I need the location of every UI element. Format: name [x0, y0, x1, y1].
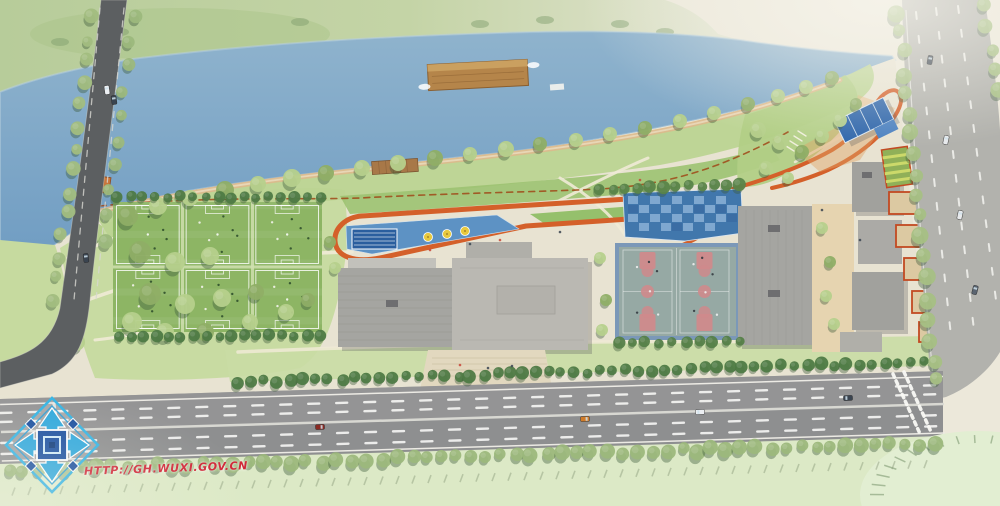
tree-highlight: [685, 181, 689, 185]
bank-shrub: [611, 20, 629, 28]
lane-dash: [970, 294, 971, 301]
tree-highlight: [350, 373, 355, 378]
tree-highlight: [227, 194, 232, 199]
free-throw-circle: [642, 306, 654, 318]
tree-highlight: [596, 366, 600, 370]
player-dot: [221, 315, 223, 317]
tree-highlight: [54, 254, 60, 260]
tree-highlight: [495, 369, 500, 374]
tree-highlight: [215, 291, 223, 299]
tree-highlight: [921, 357, 925, 361]
lane-dash: [970, 101, 971, 108]
lane-dash: [99, 8, 100, 14]
tree-highlight: [264, 330, 270, 336]
tree-highlight: [868, 361, 873, 366]
player-dot: [657, 313, 659, 315]
tree-highlight: [362, 374, 367, 379]
tree-highlight: [252, 178, 259, 185]
lane-dash: [117, 73, 118, 79]
tree-highlight: [361, 455, 368, 462]
tree-highlight: [723, 337, 727, 341]
checker-tile: [650, 214, 660, 222]
lane-dash: [915, 422, 916, 425]
lane-dash: [907, 379, 908, 382]
tree-highlight: [124, 60, 130, 66]
player-dot: [289, 282, 291, 284]
tree-highlight: [203, 249, 211, 257]
tree-highlight: [734, 442, 741, 449]
tree-highlight: [132, 244, 142, 254]
tree-highlight: [557, 446, 564, 453]
player-dot: [222, 215, 224, 217]
building-s-small: [840, 332, 882, 352]
tree-highlight: [774, 136, 781, 143]
lane-dash: [947, 103, 948, 110]
tree-highlight: [241, 193, 245, 197]
tree-highlight: [152, 331, 158, 337]
lane-dash: [80, 228, 81, 234]
tree-highlight: [131, 11, 137, 17]
tree-highlight: [323, 375, 328, 380]
person-dot: [821, 209, 824, 212]
player-dot: [701, 257, 703, 259]
roof-structure: [497, 286, 555, 314]
tree-highlight: [128, 333, 133, 338]
blue-plaza: [623, 189, 743, 241]
tree-highlight: [392, 157, 399, 164]
lane-dash: [93, 86, 94, 92]
tree-highlight: [726, 362, 732, 368]
player-dot: [716, 314, 718, 316]
tree-highlight: [992, 84, 999, 91]
player-dot: [693, 310, 695, 312]
tree-highlight: [244, 316, 251, 323]
tree-highlight: [930, 438, 937, 445]
lane-dash: [995, 292, 996, 299]
car-icon: [843, 395, 852, 400]
lane-dash: [964, 246, 965, 253]
tree-highlight: [905, 109, 912, 116]
bank-shrub: [536, 16, 554, 24]
free-throw-circle: [699, 306, 711, 318]
player-dot: [150, 280, 152, 282]
lane-dash: [97, 280, 98, 286]
lane-dash: [944, 80, 945, 87]
lane-dash: [956, 175, 957, 182]
tree-highlight: [584, 446, 590, 452]
lane-dash: [913, 393, 914, 396]
player-dot: [636, 266, 638, 268]
checker-tile: [661, 223, 671, 231]
tree-highlight: [752, 124, 759, 131]
tree-highlight: [290, 333, 294, 337]
tree-highlight: [814, 443, 819, 448]
lane-dash: [944, 274, 945, 281]
tree-highlight: [378, 455, 385, 462]
tree-highlight: [761, 163, 767, 169]
lane-dash: [893, 374, 894, 377]
decor: [104, 85, 110, 95]
tree-highlight: [65, 189, 71, 195]
tree-highlight: [719, 444, 726, 451]
lane-dash: [986, 220, 987, 227]
car-icon: [315, 424, 324, 429]
tree-highlight: [835, 115, 841, 121]
lane-dash: [99, 267, 100, 273]
player-dot: [231, 229, 233, 231]
checker-tile: [672, 196, 682, 204]
tree-highlight: [871, 439, 876, 444]
tree-highlight: [895, 26, 900, 31]
tree-highlight: [621, 365, 626, 370]
free-throw-circle: [699, 265, 711, 277]
checker-tile: [683, 223, 693, 231]
tree-highlight: [318, 458, 325, 465]
lane-dash: [983, 196, 984, 203]
tree-highlight: [826, 258, 831, 263]
tree-highlight: [629, 339, 633, 343]
player-dot: [162, 229, 164, 231]
player-dot: [147, 216, 149, 218]
tree-highlight: [247, 377, 252, 382]
tree-highlight: [260, 376, 264, 380]
tree-highlight: [898, 70, 905, 77]
tree-highlight: [930, 357, 936, 363]
lane-dash: [94, 73, 95, 79]
checker-tile: [694, 214, 704, 222]
tree-highlight: [114, 138, 119, 143]
tree-highlight: [572, 447, 578, 453]
checker-tile: [672, 214, 682, 222]
lane-dash: [102, 228, 103, 234]
tree-highlight: [798, 441, 803, 446]
player-dot: [276, 305, 278, 307]
lane-dash: [958, 6, 959, 13]
site-master-plan: HTTP://GH.WUXI.GOV.CN: [0, 0, 1000, 506]
tree-highlight: [556, 368, 560, 372]
tree-highlight: [817, 131, 823, 137]
tree-highlight: [317, 194, 322, 199]
bank-shrub: [291, 18, 309, 26]
player-dot: [201, 286, 203, 288]
checker-tile: [628, 196, 638, 204]
tree-highlight: [466, 452, 472, 458]
lane-dash: [939, 32, 940, 39]
tree-highlight: [82, 54, 88, 60]
lane-dash: [964, 54, 965, 61]
lane-dash: [967, 270, 968, 277]
person-dot: [469, 243, 472, 246]
lane-dash: [122, 21, 123, 27]
tree-highlight: [737, 338, 741, 342]
free-throw-circle: [642, 265, 654, 277]
tree-highlight: [285, 458, 292, 465]
person-dot: [499, 239, 502, 242]
tree-highlight: [839, 439, 846, 446]
tree-highlight: [743, 99, 749, 105]
lane-dash: [942, 56, 943, 63]
building-west: [338, 268, 452, 347]
tree-highlight: [825, 442, 830, 447]
lane-dash: [910, 386, 911, 389]
tree-highlight: [265, 192, 269, 196]
tree-highlight: [605, 129, 611, 135]
tree-highlight: [830, 320, 835, 325]
tree-highlight: [571, 135, 577, 141]
tree-highlight: [110, 160, 116, 166]
tree-highlight: [734, 179, 740, 185]
tree-highlight: [112, 193, 117, 198]
tree-highlight: [640, 123, 646, 129]
tree-highlight: [584, 370, 588, 374]
lane-dash: [89, 125, 90, 131]
tree-highlight: [63, 206, 69, 212]
tree-highlight: [602, 445, 609, 452]
lane-dash: [908, 408, 909, 411]
player-dot: [711, 273, 713, 275]
lane-dash: [78, 254, 79, 260]
tree-highlight: [691, 446, 698, 453]
player-dot: [132, 284, 134, 286]
person-dot: [511, 365, 514, 368]
tree-highlight: [339, 376, 344, 381]
tree-highlight: [84, 38, 89, 43]
lane-dash: [95, 60, 96, 66]
center-spot: [216, 233, 218, 235]
tree-highlight: [712, 362, 718, 368]
tree-highlight: [272, 457, 278, 463]
player-dot: [307, 237, 309, 239]
tree-highlight: [621, 185, 626, 190]
player-dot: [169, 304, 171, 306]
tree-highlight: [634, 184, 639, 189]
lane-dash: [88, 137, 89, 143]
tree-highlight: [882, 359, 887, 364]
lane-dash: [96, 293, 97, 299]
tree-highlight: [429, 152, 436, 159]
player-dot: [704, 291, 706, 293]
checker-tile: [661, 205, 671, 213]
lane-dash: [896, 381, 897, 384]
tree-highlight: [416, 373, 420, 377]
tree-highlight: [673, 366, 678, 371]
tree-highlight: [931, 374, 937, 380]
tree-highlight: [699, 183, 703, 187]
tree-highlight: [602, 296, 607, 301]
decor: [843, 395, 852, 400]
lane-dash: [923, 413, 924, 416]
tree-highlight: [615, 338, 621, 344]
lane-dash: [921, 60, 922, 67]
lane-dash: [79, 241, 80, 247]
building-center-wing: [466, 242, 532, 260]
tree-highlight: [705, 442, 712, 449]
player-dot: [299, 227, 301, 229]
checker-tile: [727, 214, 737, 222]
swimming-pool: [352, 229, 397, 249]
tree-highlight: [531, 367, 537, 373]
car-icon: [111, 95, 117, 105]
tree-highlight: [722, 181, 727, 186]
tree-highlight: [215, 193, 220, 198]
tree-highlight: [285, 171, 293, 179]
tree-highlight: [304, 331, 309, 336]
person-dot: [487, 367, 490, 370]
tree-highlight: [151, 193, 155, 197]
lane-dash: [74, 293, 75, 299]
tree-highlight: [709, 108, 715, 114]
decor: [697, 410, 699, 414]
tree-highlight: [598, 326, 603, 331]
person-dot: [639, 179, 642, 182]
tree-highlight: [921, 270, 929, 278]
building-se: [852, 272, 904, 330]
lane-dash: [118, 60, 119, 66]
tree-highlight: [241, 331, 246, 336]
tree-highlight: [687, 364, 692, 369]
player-dot: [198, 221, 200, 223]
tree-highlight: [272, 378, 278, 384]
checker-tile: [628, 214, 638, 222]
player-dot: [649, 290, 651, 292]
car-icon: [83, 253, 89, 263]
tree-highlight: [375, 373, 380, 378]
tree-highlight: [546, 367, 551, 372]
tree-highlight: [634, 367, 639, 372]
lane-dash: [992, 268, 993, 275]
tree-highlight: [610, 186, 614, 190]
tree-highlight: [916, 210, 921, 215]
lane-dash: [967, 77, 968, 84]
tree-highlight: [227, 331, 233, 337]
lane-dash: [950, 127, 951, 134]
tree-highlight: [517, 368, 523, 374]
tree-highlight: [750, 363, 755, 368]
tree-highlight: [784, 174, 789, 179]
tree-highlight: [203, 194, 207, 198]
tree-highlight: [822, 292, 827, 297]
lane-dash: [936, 8, 937, 15]
lane-dash: [916, 12, 917, 19]
tree-highlight: [782, 444, 787, 449]
car-icon: [580, 416, 589, 421]
tree-highlight: [979, 21, 986, 28]
tree-highlight: [331, 264, 336, 269]
checker-tile: [639, 223, 649, 231]
player-dot: [138, 305, 140, 307]
roof-vent: [386, 300, 398, 307]
tree-highlight: [648, 367, 654, 373]
lane-dash: [899, 388, 900, 391]
center-circle: [641, 285, 654, 298]
lane-dash: [918, 429, 919, 432]
tree-highlight: [277, 193, 282, 198]
player-dot: [165, 238, 167, 240]
tree-highlight: [300, 456, 306, 462]
center-circle: [698, 285, 711, 298]
lane-dash: [902, 395, 903, 398]
lane-dash: [929, 131, 930, 138]
lane-dash: [120, 47, 121, 53]
tree-highlight: [465, 149, 471, 155]
tree-highlight: [142, 286, 152, 296]
lane-dash: [112, 124, 113, 130]
tree-highlight: [168, 255, 177, 264]
tree-highlight: [773, 91, 779, 97]
tree-highlight: [392, 451, 399, 458]
checker-tile: [716, 214, 726, 222]
decor: [111, 95, 117, 105]
tree-highlight: [680, 444, 685, 449]
tree-highlight: [911, 190, 917, 196]
tree-highlight: [138, 192, 143, 197]
tree-highlight: [908, 148, 915, 155]
center-spot: [286, 298, 288, 300]
tree-highlight: [178, 297, 187, 306]
person-dot: [859, 239, 862, 242]
tree-highlight: [894, 360, 898, 364]
tree-highlight: [388, 373, 394, 379]
tree-highlight: [124, 37, 130, 43]
lane-dash: [989, 244, 990, 251]
lane-dash: [110, 150, 111, 156]
decor: [845, 396, 847, 400]
lane-dash: [84, 176, 85, 182]
lane-dash: [86, 163, 87, 169]
player-dot: [692, 263, 694, 265]
tree-highlight: [233, 379, 239, 385]
tree-highlight: [512, 449, 518, 455]
tree-highlight: [52, 272, 57, 277]
tree-highlight: [831, 362, 836, 367]
lane-dash: [942, 251, 943, 258]
player-dot: [204, 308, 206, 310]
tree-highlight: [117, 88, 122, 93]
checker-tile: [705, 223, 715, 231]
tree-highlight: [659, 182, 665, 188]
lane-dash: [959, 199, 960, 206]
tree-highlight: [762, 362, 768, 368]
lane-dash: [961, 30, 962, 37]
tree-highlight: [707, 337, 713, 343]
player-dot: [276, 238, 278, 240]
lane-dash: [926, 420, 927, 423]
tree-highlight: [298, 373, 304, 379]
lane-dash: [939, 227, 940, 234]
tree-highlight: [841, 359, 847, 365]
tree-highlight: [904, 126, 911, 133]
tree-highlight: [403, 372, 407, 376]
center-spot: [147, 233, 149, 235]
lane-dash: [905, 401, 906, 404]
player-dot: [271, 221, 273, 223]
tree-highlight: [190, 331, 195, 336]
lane-dash: [926, 107, 927, 114]
player-dot: [151, 310, 153, 312]
tree-highlight: [410, 451, 416, 457]
tree-highlight: [115, 333, 120, 338]
tree-highlight: [640, 337, 645, 342]
lane-dash: [931, 155, 932, 162]
checker-tile: [683, 205, 693, 213]
player-dot: [636, 311, 638, 313]
tree-highlight: [72, 123, 78, 129]
tree-highlight: [437, 452, 443, 458]
lane-dash: [76, 267, 77, 273]
player-dot: [208, 239, 210, 241]
tree-highlight: [801, 82, 807, 88]
player-dot: [217, 284, 219, 286]
